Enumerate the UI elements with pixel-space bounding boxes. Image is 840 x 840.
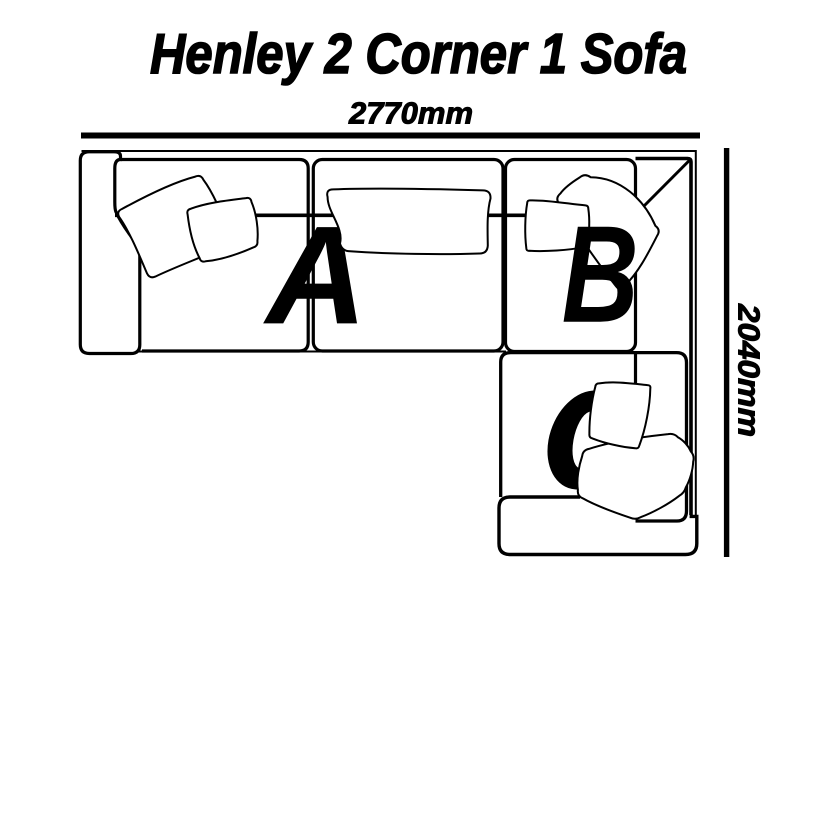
svg-text:Henley 2 Corner 1 Sofa: Henley 2 Corner 1 Sofa: [150, 22, 687, 86]
svg-text:2040mm: 2040mm: [732, 303, 766, 437]
svg-text:2770mm: 2770mm: [348, 97, 473, 131]
svg-text:B: B: [562, 197, 639, 351]
